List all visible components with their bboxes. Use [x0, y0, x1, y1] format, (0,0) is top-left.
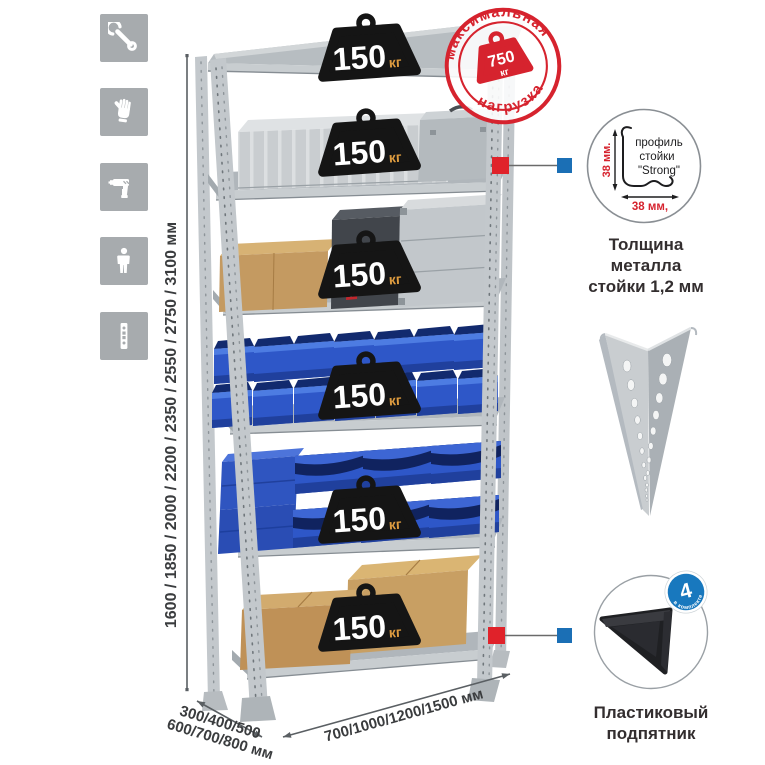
- load-value: 150: [331, 38, 387, 78]
- profile-detail-circle: 38 мм. 38 мм, профиль стойки "Strong": [585, 107, 703, 225]
- svg-text:кг: кг: [388, 624, 402, 641]
- upright-post-photo: [597, 310, 699, 528]
- shelving-product-infographic: 1600 / 1850 / 2000 / 2200 / 2350 / 2550 …: [0, 0, 765, 765]
- profile-label-3: "Strong": [638, 165, 680, 177]
- person-icon: [108, 245, 140, 277]
- gloves-icon: [108, 96, 140, 128]
- svg-text:кг: кг: [388, 271, 402, 288]
- feature-tile-post: [100, 312, 148, 360]
- shelf-load-weight-1: 150 кг: [319, 13, 417, 78]
- foot-caption: Пластиковый подпятник: [581, 702, 721, 744]
- svg-text:кг: кг: [388, 392, 402, 409]
- height-dimension-label: 1600 / 1850 / 2000 / 2200 / 2350 / 2550 …: [163, 185, 181, 665]
- wrench-icon: [108, 22, 140, 54]
- profile-dim-vertical: 38 мм.: [601, 143, 613, 178]
- profile-callout-connector: [490, 150, 575, 182]
- svg-text:кг: кг: [388, 516, 402, 533]
- svg-text:150: 150: [331, 500, 387, 540]
- feature-tile-assembly: [100, 14, 148, 62]
- profile-caption-line2: стойки 1,2 мм: [576, 276, 716, 297]
- foot-callout-connector: [486, 620, 574, 652]
- foot-caption-line1: Пластиковый: [581, 702, 721, 723]
- profile-label-2: стойки: [639, 151, 674, 163]
- profile-caption-line1: Толщина металла: [576, 234, 716, 276]
- svg-text:кг: кг: [388, 149, 402, 166]
- profile-label-1: профиль: [635, 137, 683, 149]
- feature-tile-drill: [100, 163, 148, 211]
- feature-tile-person: [100, 237, 148, 285]
- drill-icon: [108, 171, 140, 203]
- svg-text:150: 150: [331, 608, 387, 648]
- profile-caption: Толщина металла стойки 1,2 мм: [576, 234, 716, 297]
- svg-text:150: 150: [331, 255, 387, 295]
- svg-text:150: 150: [331, 133, 387, 173]
- load-unit: кг: [388, 54, 402, 71]
- svg-text:150: 150: [331, 376, 387, 416]
- width-dimension-line: [276, 666, 518, 744]
- foot-caption-line2: подпятник: [581, 723, 721, 744]
- profile-dim-horizontal: 38 мм,: [632, 201, 668, 213]
- perforated-post-icon: [108, 320, 140, 352]
- feature-tile-gloves: [100, 88, 148, 136]
